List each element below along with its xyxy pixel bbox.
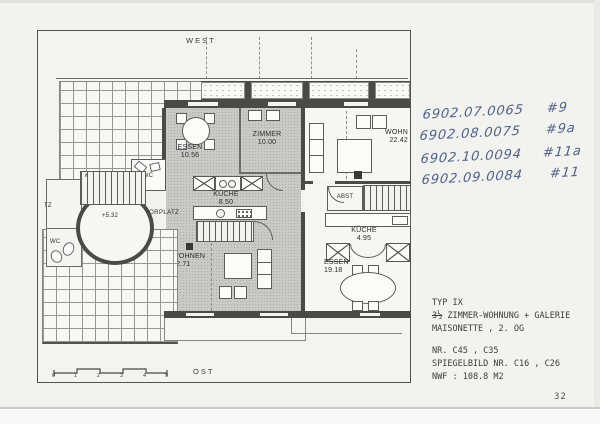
table: [337, 139, 372, 173]
struck-text: 3½: [432, 311, 442, 321]
room-name: WOHNEN: [172, 253, 218, 261]
room-label-abst: ABST: [333, 194, 357, 201]
page-number: 32: [554, 392, 567, 402]
shelf-divider: [310, 155, 323, 156]
note-code: 6902.10.0094: [420, 147, 523, 167]
balcony-railing: [291, 318, 402, 334]
oval-dining-table: [340, 272, 396, 304]
stair-direction-arrow: ∧: [84, 172, 88, 179]
description-text: ZIMMER-WOHNUNG + GALERIE: [447, 311, 570, 321]
chimney-block: [354, 171, 362, 179]
handwritten-note-row: 6902.10.0094 #11a: [420, 144, 582, 167]
chair: [368, 301, 379, 311]
handwritten-note-row: 6902.07.0065 #9: [422, 100, 568, 123]
kitchen-counter: [193, 206, 267, 220]
note-code: 6902.07.0065: [422, 103, 525, 123]
note-tag: #9a: [545, 121, 576, 138]
scale-tick: 4: [143, 373, 146, 379]
wardrobe: [266, 110, 280, 121]
room-label-wohn-right: WOHN 22.42: [368, 129, 408, 145]
planter-box: [201, 82, 245, 99]
title-description: 3½ ZIMMER-WOHNUNG + GALERIE: [432, 310, 592, 323]
dashed-line: [311, 37, 312, 79]
wall-segment: [239, 108, 241, 172]
main-stairs: [80, 171, 146, 205]
internal-stairs: [196, 221, 254, 242]
room-label-wohnen: WOHNEN 22.71: [172, 253, 218, 269]
shelf-divider: [258, 262, 271, 263]
wall-segment: [164, 100, 410, 108]
dashed-line: [259, 37, 260, 79]
orientation-label-west: WEST: [186, 36, 216, 45]
shelf-divider: [310, 139, 323, 140]
title-nr: NR. C45 , C35: [432, 345, 592, 358]
note-tag: #11a: [542, 144, 582, 161]
wall-segment: [164, 311, 410, 318]
page-edge-right: [594, 0, 600, 424]
title-spiegelbild: SPIEGELBILD NR. C16 , C26: [432, 358, 592, 371]
stove: [236, 209, 252, 218]
neighbor-stairs: [363, 185, 411, 211]
kitchen-sink-unit: [215, 176, 241, 191]
scale-tick: 5: [165, 373, 168, 379]
title-maisonette: MAISONETTE , 2. OG: [432, 323, 592, 336]
room-label-kueche-main: KÜCHE 8.50: [206, 191, 246, 207]
room-name: KÜCHE: [344, 227, 384, 235]
shelf: [309, 123, 324, 173]
appliance: [392, 216, 408, 225]
handwritten-note-row: 6902.09.0084 #11: [421, 165, 581, 188]
window-gap: [344, 102, 368, 106]
note-code: 6902.08.0075: [419, 124, 522, 144]
balcony: [164, 318, 306, 341]
seat: [219, 286, 232, 299]
table: [224, 253, 252, 279]
scale-tick: 0: [52, 373, 55, 379]
note-tag: #11: [549, 165, 580, 182]
sink-bowl: [216, 209, 225, 218]
scale-tick: 1: [74, 373, 77, 379]
kitchen-counter: [325, 213, 411, 227]
page-edge-top: [0, 0, 600, 3]
title-block: TYP IX 3½ ZIMMER-WOHNUNG + GALERIE MAISO…: [432, 297, 592, 384]
handwritten-notes: 6902.07.0065 #9 6902.08.0075 #9a 6902.10…: [415, 104, 590, 194]
room-label-kueche-small: KÜCHE 4.95: [344, 227, 384, 243]
wall-segment: [305, 181, 410, 184]
room-name: KÜCHE: [206, 191, 246, 199]
shelf-divider: [258, 274, 271, 275]
room-label-essen-upper: ESSEN 10.56: [168, 144, 212, 160]
scale-bar: 0 1 2 3 4 5: [52, 363, 172, 381]
cushion: [372, 115, 387, 129]
room-area: 10.00: [242, 139, 292, 147]
dashed-line: [206, 37, 207, 79]
shelf: [257, 249, 272, 289]
floor-plan: WEST ESS: [37, 30, 411, 383]
window-gap: [268, 102, 296, 106]
wardrobe: [248, 110, 262, 121]
scale-tick: 2: [97, 373, 100, 379]
fixture: [149, 162, 160, 172]
scanned-page: WEST ESS: [0, 0, 600, 424]
room-area: 22.42: [368, 137, 408, 145]
room-area: 10.56: [168, 152, 212, 160]
room-label-tz: TZ: [44, 203, 60, 210]
page-edge-bottom: [0, 409, 600, 424]
orientation-label-ost: OST: [193, 367, 214, 376]
room-area: 4.95: [344, 235, 384, 243]
room-label-wc-left: WC: [50, 239, 68, 246]
room-name: ZIMMER: [242, 131, 292, 139]
cushion: [356, 115, 371, 129]
kitchen-unit: [241, 176, 263, 191]
title-nwf: NWF : 108.8 M2: [432, 371, 592, 384]
handwritten-note-row: 6902.08.0075 #9a: [419, 121, 576, 144]
chair: [352, 301, 363, 311]
sink-bowl: [228, 180, 236, 188]
note-tag: #9: [546, 100, 568, 116]
dining-table: [182, 117, 210, 145]
door-gap: [313, 181, 335, 184]
level-mark: +5.32: [90, 213, 130, 220]
stove-block: [186, 243, 193, 250]
scale-tick: 3: [120, 373, 123, 379]
window-gap: [188, 102, 218, 106]
planter-box: [375, 82, 410, 99]
planter-box: [309, 82, 369, 99]
kitchen-unit: [193, 176, 215, 191]
room-label-zimmer: ZIMMER 10.00: [242, 131, 292, 147]
scale-bar-graphic: [52, 364, 172, 376]
room-area: 22.71: [172, 261, 218, 269]
window-gap: [260, 313, 288, 316]
top-facade-line: [56, 78, 408, 79]
side-table: [386, 243, 410, 262]
seat: [234, 286, 247, 299]
planter-band: [201, 81, 410, 100]
window-gap: [186, 313, 214, 316]
sink-bowl: [219, 180, 227, 188]
window-gap: [360, 313, 380, 316]
room-name: ESSEN: [168, 144, 212, 152]
note-code: 6902.09.0084: [421, 168, 524, 188]
title-type: TYP IX: [432, 297, 592, 310]
planter-box: [251, 82, 303, 99]
room-name: WOHN: [368, 129, 408, 137]
dashed-line: [356, 49, 357, 79]
